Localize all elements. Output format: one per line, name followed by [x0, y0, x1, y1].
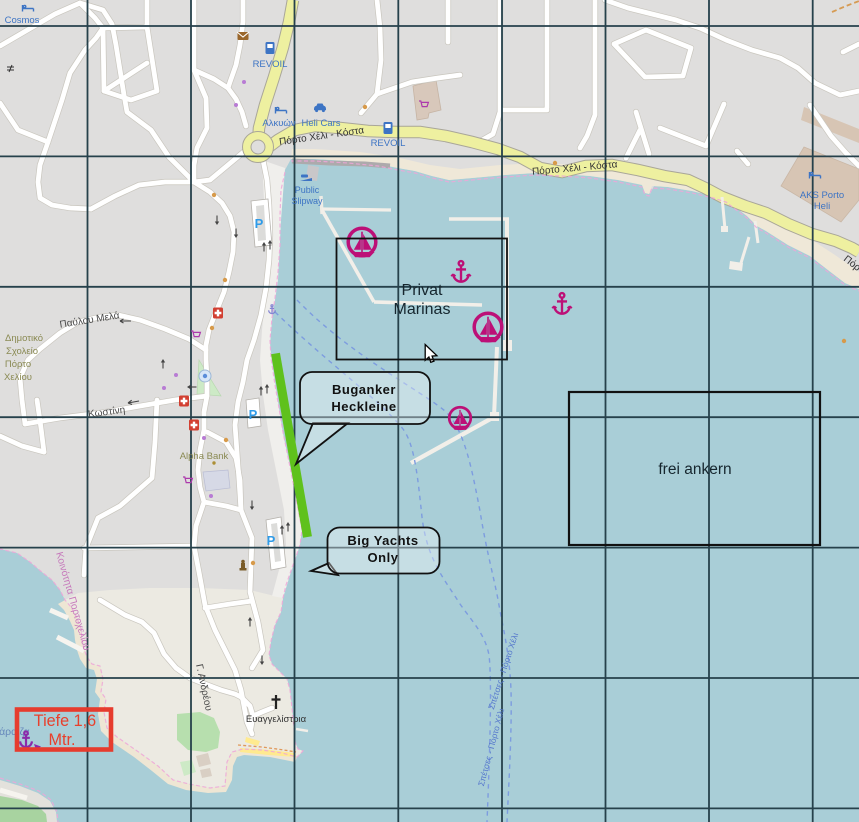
svg-text:Slipway: Slipway: [291, 196, 323, 206]
svg-text:REVOIL: REVOIL: [371, 138, 406, 149]
svg-text:Privat: Privat: [402, 282, 443, 299]
svg-text:Πόρτο: Πόρτο: [5, 359, 31, 370]
svg-text:Cosmos: Cosmos: [5, 15, 40, 26]
svg-text:Only: Only: [368, 550, 399, 565]
svg-text:Σχολείο: Σχολείο: [6, 346, 38, 357]
svg-text:Alpha Bank: Alpha Bank: [180, 451, 229, 462]
svg-text:P: P: [249, 407, 258, 422]
svg-text:Marinas: Marinas: [394, 301, 451, 318]
svg-text:frei ankern: frei ankern: [658, 461, 731, 478]
svg-text:P: P: [267, 533, 276, 548]
svg-text:Αλκυών: Αλκυών: [262, 118, 295, 129]
svg-text:Buganker: Buganker: [332, 382, 396, 397]
svg-text:Ευαγγελίστρια: Ευαγγελίστρια: [246, 714, 307, 725]
svg-text:Δημοτικό: Δημοτικό: [5, 333, 43, 344]
svg-text:Heckleine: Heckleine: [331, 399, 396, 414]
svg-text:Tiefe 1,6: Tiefe 1,6: [34, 712, 96, 730]
svg-text:Mtr.: Mtr.: [49, 731, 76, 749]
svg-text:Heli Cars: Heli Cars: [301, 118, 340, 129]
svg-text:Public: Public: [295, 185, 320, 195]
svg-text:Heli: Heli: [814, 201, 830, 212]
svg-text:Big Yachts: Big Yachts: [347, 533, 418, 548]
svg-text:AKS Porto: AKS Porto: [800, 190, 844, 201]
svg-text:Χελίου: Χελίου: [4, 372, 32, 383]
svg-text:P: P: [255, 216, 264, 231]
svg-text:REVOIL: REVOIL: [253, 59, 288, 70]
